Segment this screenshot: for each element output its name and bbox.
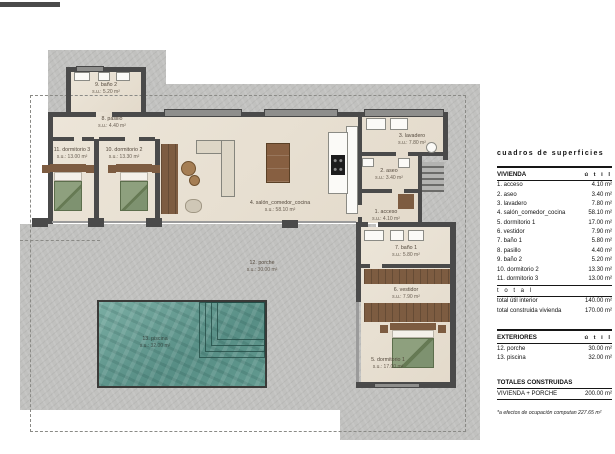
row-value: 140.00 m² (585, 298, 612, 304)
row-label: 13. piscina (497, 355, 526, 361)
sink-icon (408, 230, 424, 241)
room-name: 13. piscina (120, 336, 190, 343)
table-row: 7. baño 15.80 m² (497, 237, 612, 246)
room-name: 6. vestidor (371, 287, 441, 294)
room-area: s.u.: 32.00 m² (120, 343, 190, 350)
porch-pillar (88, 218, 104, 227)
room-label-acceso: 1. acceso s.u.: 4.10 m² (351, 209, 421, 223)
entry-door-icon (398, 194, 414, 209)
wall (450, 227, 456, 387)
row-value: 200.00 m² (585, 391, 612, 397)
util-column-label: ú t i l (584, 172, 612, 178)
table-row: 3. lavadero7.80 m² (497, 199, 612, 208)
room-label-piscina: 13. piscina s.u.: 32.00 m² (120, 336, 190, 350)
sink-icon (116, 72, 130, 81)
row-value: 30.00 m² (588, 346, 612, 352)
room-name: 2. aseo (354, 168, 424, 175)
row-value: 7.90 m² (592, 229, 612, 235)
table-row: 13. piscina32.00 m² (497, 353, 612, 362)
row-label: 6. vestidor (497, 229, 525, 235)
cooktop-icon (331, 155, 345, 175)
exteriores-header-label: EXTERIORES (497, 334, 537, 341)
room-label-bano2: 9. baño 2 s.u.: 5.20 m² (71, 82, 141, 96)
wall (141, 67, 146, 115)
toilet-icon (398, 158, 410, 168)
row-value: 32.00 m² (588, 355, 612, 361)
vivienda-header-label: VIVIENDA (497, 171, 526, 178)
room-name: 1. acceso (351, 209, 421, 216)
exteriores-section: EXTERIORES ú t i l 12. porche30.00 m² 13… (497, 329, 612, 362)
room-label-pasillo: 8. pasillo s.u.: 4.40 m² (77, 116, 147, 130)
shower-icon (364, 230, 384, 241)
nightstand-icon (108, 165, 116, 173)
pouf-icon (189, 175, 200, 186)
room-area: s.u.: 3.40 m² (354, 175, 424, 182)
room-label-aseo: 2. aseo s.u.: 3.40 m² (354, 168, 424, 182)
row-value: 4.10 m² (592, 182, 612, 188)
room-area: s.u.: 30.00 m² (227, 267, 297, 274)
room-name: 10. dormitorio 2 (89, 147, 159, 154)
cabinet-icon (390, 118, 408, 130)
nightstand-icon (42, 165, 50, 173)
porch-pillar (282, 220, 298, 228)
screen-edge-artifact (0, 2, 60, 7)
room-area: s.u.: 13.30 m² (89, 154, 159, 161)
nightstand-icon (86, 165, 94, 173)
sink-icon (362, 158, 374, 167)
bed-headboard-icon (50, 164, 86, 172)
room-name: 8. pasillo (77, 116, 147, 123)
nightstand-icon (380, 325, 388, 333)
room-label-salon: 4. salón_comedor_cocina s.u.: 58.10 m² (245, 200, 315, 214)
row-value: 5.20 m² (592, 257, 612, 263)
row-label: 5. dormitorio 1 (497, 220, 535, 226)
totales-header: TOTALES CONSTRUIDAS (497, 379, 612, 390)
bed-headboard-icon (116, 164, 152, 172)
table-row: 5. dormitorio 117.00 m² (497, 218, 612, 227)
room-label-bano1: 7. baño 1 s.u.: 5.80 m² (371, 245, 441, 259)
room-name: 5. dormitorio 1 (353, 357, 423, 364)
pouf-icon (181, 161, 196, 176)
room-area: s.u.: 7.90 m² (371, 294, 441, 301)
row-label: 2. aseo (497, 192, 517, 198)
room-label-dormitorio2: 10. dormitorio 2 s.u.: 13.30 m² (89, 147, 159, 161)
room-label-dormitorio1: 5. dormitorio 1 s.u.: 17.00 m² (353, 357, 423, 371)
toilet-icon (98, 72, 110, 81)
table-row-total: total útil interior140.00 m² (497, 297, 612, 306)
room-area: s.u.: 5.20 m² (71, 89, 141, 96)
porch-pillar (32, 218, 48, 227)
row-value: 58.10 m² (588, 210, 612, 216)
row-label: total construida vivienda (497, 308, 561, 314)
sink-icon (74, 72, 90, 81)
bed-pillow-icon (392, 330, 434, 338)
util-column-label: ú t i l (584, 335, 612, 341)
row-value: 170.00 m² (585, 308, 612, 314)
table-row: 2. aseo3.40 m² (497, 190, 612, 199)
room-name: 12. porche (227, 260, 297, 267)
room-label-porche: 12. porche s.u.: 30.00 m² (227, 260, 297, 274)
room-area: s.u.: 4.40 m² (77, 123, 147, 130)
window-icon (364, 109, 444, 117)
porch-pillar (146, 218, 162, 227)
pool-steps-icon (217, 302, 265, 340)
room-name: 3. lavadero (377, 133, 447, 140)
wardrobe-icon (364, 269, 450, 284)
row-value: 13.30 m² (588, 267, 612, 273)
row-label: total útil interior (497, 298, 538, 304)
wall (360, 264, 370, 268)
room-area: s.u.: 5.80 m² (371, 252, 441, 259)
toilet-icon (390, 230, 404, 241)
total-divider: t o t a l (497, 285, 612, 297)
ottoman-icon (185, 199, 202, 213)
wall (408, 152, 444, 156)
surface-tables-title: cuadros de superficies (497, 150, 612, 157)
room-area: s.u.: 7.80 m² (377, 140, 447, 147)
room-area: s.u.: 4.10 m² (351, 216, 421, 223)
room-area: s.u.: 17.00 m² (353, 364, 423, 371)
row-value: 13.00 m² (588, 276, 612, 282)
row-label: VIVIENDA + PORCHE (497, 391, 557, 397)
wall (404, 189, 420, 193)
room-name: 9. baño 2 (71, 82, 141, 89)
table-row: 9. baño 25.20 m² (497, 256, 612, 265)
row-value: 7.80 m² (592, 201, 612, 207)
wall (382, 264, 452, 268)
row-label: 11. dormitorio 3 (497, 276, 538, 282)
bed-icon (54, 181, 82, 211)
row-label: 9. baño 2 (497, 257, 522, 263)
room-name: 4. salón_comedor_cocina (245, 200, 315, 207)
wall (362, 189, 392, 193)
row-label: 8. pasillo (497, 248, 521, 254)
nightstand-icon (152, 165, 160, 173)
table-row: 6. vestidor7.90 m² (497, 227, 612, 236)
table-row: 1. acceso4.10 m² (497, 181, 612, 190)
table-row: 10. dormitorio 213.30 m² (497, 265, 612, 274)
dining-table-icon (266, 143, 290, 183)
room-label-lavadero: 3. lavadero s.u.: 7.80 m² (377, 133, 447, 147)
vivienda-table-header: VIVIENDA ú t i l (497, 166, 612, 181)
exteriores-table-header: EXTERIORES ú t i l (497, 329, 612, 344)
row-label: 7. baño 1 (497, 238, 522, 244)
bed-icon (120, 181, 148, 211)
row-value: 5.80 m² (592, 238, 612, 244)
sofa-icon (221, 140, 235, 197)
row-label: 10. dormitorio 2 (497, 267, 539, 273)
row-value: 4.40 m² (592, 248, 612, 254)
row-label: 1. acceso (497, 182, 523, 188)
wall (99, 137, 125, 141)
wall (362, 152, 396, 156)
table-row: 4. salón_comedor_cocina58.10 m² (497, 209, 612, 218)
table-row: 12. porche30.00 m² (497, 344, 612, 353)
surface-tables-panel: cuadros de superficies VIVIENDA ú t i l … (497, 150, 612, 416)
window-icon (264, 109, 338, 117)
occupancy-footnote: *a efectos de ocupación computan 227.65 … (497, 410, 612, 416)
table-row-total: total construida vivienda170.00 m² (497, 306, 612, 315)
room-area: s.u.: 58.10 m² (245, 207, 315, 214)
table-row: 11. dormitorio 313.00 m² (497, 274, 612, 283)
room-name: 7. baño 1 (371, 245, 441, 252)
wall (48, 137, 74, 141)
bed-headboard-icon (390, 323, 436, 330)
table-row-grand-total: VIVIENDA + PORCHE200.00 m² (497, 389, 612, 400)
wardrobe-icon (161, 144, 178, 214)
window-icon (164, 109, 242, 117)
row-label: 3. lavadero (497, 201, 527, 207)
porch-dashed-line (20, 240, 100, 241)
row-value: 17.00 m² (588, 220, 612, 226)
room-label-vestidor: 6. vestidor s.u.: 7.90 m² (371, 287, 441, 301)
bed-pillow-icon (120, 172, 148, 181)
row-value: 3.40 m² (592, 192, 612, 198)
bed-pillow-icon (54, 172, 82, 181)
wardrobe-icon (364, 303, 450, 322)
floor-plan-page: 9. baño 2 s.u.: 5.20 m² 8. pasillo s.u.:… (0, 0, 615, 454)
wall (139, 137, 155, 141)
washer-icon (366, 118, 386, 130)
wall (82, 137, 94, 141)
nightstand-icon (438, 325, 446, 333)
table-row: 8. pasillo4.40 m² (497, 246, 612, 255)
row-label: 4. salón_comedor_cocina (497, 210, 565, 216)
row-label: 12. porche (497, 346, 525, 352)
window-icon (374, 383, 420, 388)
